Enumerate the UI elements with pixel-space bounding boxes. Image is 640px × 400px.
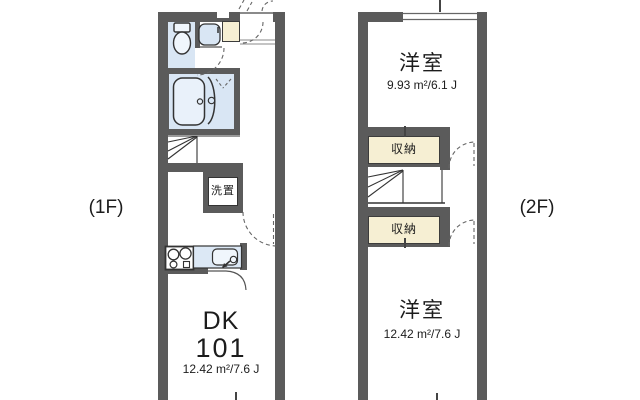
window-opening [403, 12, 477, 22]
staircase-2f-icon [368, 170, 445, 203]
room1-area-label: 9.93 m²/6.1 J [362, 79, 482, 92]
closet-door-arcs-2f [449, 142, 475, 246]
genkan-step-lines [240, 40, 275, 44]
closet2-right-wall [440, 216, 450, 247]
room-type-label: DK [171, 308, 271, 336]
floorplan-canvas: 洗置 DK 101 12.42 m²/7.6 J (1F) 洋室 9.93 m²… [0, 0, 640, 400]
floor-label-1f: (1F) [76, 198, 136, 219]
unit-number-label: 101 [171, 334, 271, 364]
wall-right-1f [275, 12, 285, 400]
room2-area-label: 12.42 m²/7.6 J [362, 328, 482, 341]
wall-right-2f [477, 12, 487, 400]
entrance-cabinet [222, 21, 240, 42]
closet2-top-wall [368, 207, 450, 216]
laundry-label: 洗置 [208, 185, 238, 197]
toilet-divider-wall [195, 22, 200, 48]
wall-under-stairs [163, 163, 243, 172]
toilet-room [168, 22, 195, 68]
dk-area-label: 12.42 m²/7.6 J [161, 363, 281, 376]
kitchen-boundary-line [208, 271, 246, 290]
room2-name-label: 洋室 [372, 299, 472, 322]
staircase-1f-icon [168, 136, 240, 163]
closet1-label: 収納 [368, 143, 440, 156]
entrance-door-opening [240, 12, 273, 22]
floor-label-2f: (2F) [507, 198, 567, 219]
closet1-right-wall [440, 136, 450, 170]
wall-notch [217, 12, 229, 18]
wall-left-2f [358, 12, 368, 400]
closet1-top-wall [368, 127, 450, 136]
closet2-bottom-line [368, 244, 440, 247]
closet2-label: 収納 [368, 223, 440, 236]
washbasin-icon [199, 24, 222, 47]
closet1-bottom-line [368, 164, 440, 167]
kitchen-right-stub-wall [240, 243, 247, 270]
bathroom-floor [169, 74, 234, 129]
kitchen-under-wall [163, 267, 208, 274]
room1-name-label: 洋室 [372, 52, 472, 75]
kitchen-sink-icon [194, 246, 242, 268]
